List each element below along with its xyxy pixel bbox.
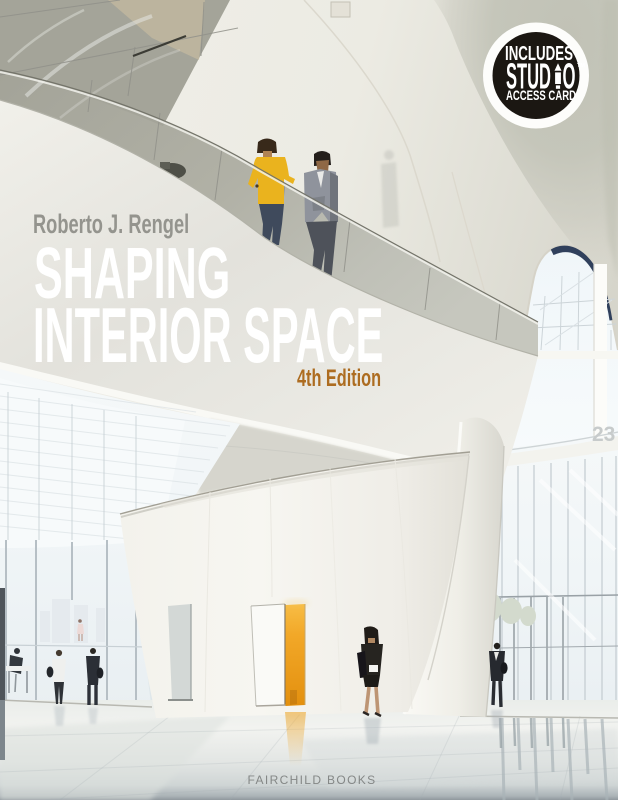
- svg-text:23: 23: [592, 423, 615, 446]
- svg-text:ACCESS CARD: ACCESS CARD: [506, 87, 576, 103]
- svg-text:TM: TM: [577, 63, 585, 69]
